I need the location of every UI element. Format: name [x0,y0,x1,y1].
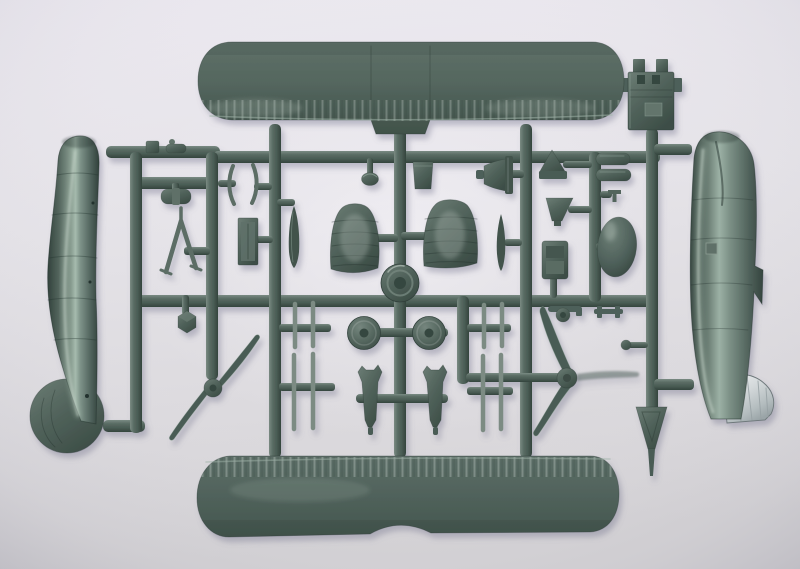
cowling-ring-part [381,264,419,302]
access-panel-part [238,218,258,265]
wheel-left-part [348,317,381,350]
oil-cooler-part [161,188,191,205]
lower-wing-part [197,456,621,538]
tailplane-left-part [330,204,379,273]
sprue-photo [0,0,800,569]
pilot-seat-part [542,241,568,279]
runner-top [106,146,220,158]
mushroom-pin-part [362,173,379,186]
runner-right [646,128,658,414]
small-fitting-part-1 [146,141,159,153]
tailplane-right-part [423,200,477,268]
small-block-part [413,162,433,189]
sprue-photo-canvas [0,0,800,569]
control-knob-part [621,340,631,350]
runner-left [130,152,142,433]
wheel-right-part [413,317,446,350]
upper-wing-part [198,42,624,134]
